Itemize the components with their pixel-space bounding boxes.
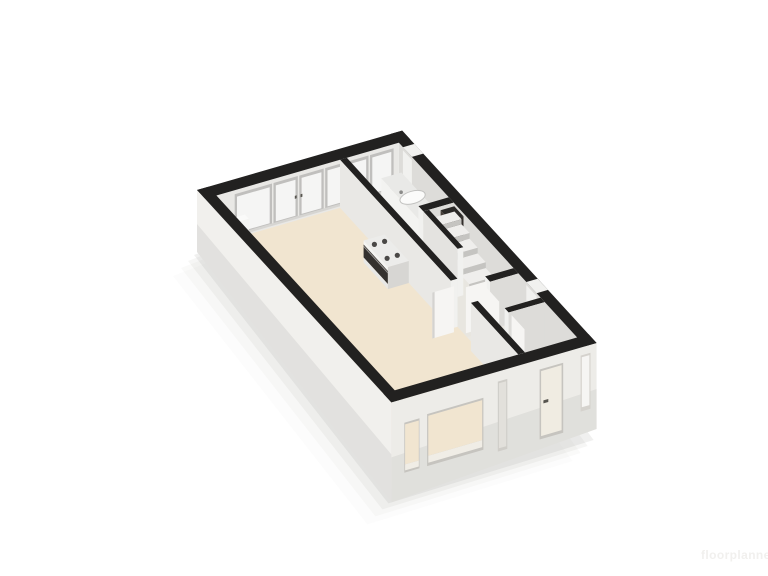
door-handle-icon [295, 195, 297, 199]
burner-icon [382, 239, 387, 244]
corner-window-glass [582, 355, 590, 407]
french-door-left-glass [276, 180, 296, 222]
faucet-icon [399, 190, 403, 194]
burner-icon [385, 256, 390, 261]
burner-icon [372, 242, 377, 247]
french-door-right-glass [302, 172, 322, 214]
floorplan-page: floorplanner [0, 0, 768, 576]
living-room-door-edge [432, 292, 434, 339]
stair-wall-end [458, 247, 464, 297]
window-cutout-interior [405, 421, 419, 465]
living-room-door-leaf [432, 286, 454, 338]
door-handle-icon [301, 194, 303, 198]
sidelight-glass [499, 381, 506, 448]
burner-icon [395, 253, 400, 258]
watermark: floorplanner [701, 548, 768, 562]
floorplan-3d-view [0, 0, 768, 576]
